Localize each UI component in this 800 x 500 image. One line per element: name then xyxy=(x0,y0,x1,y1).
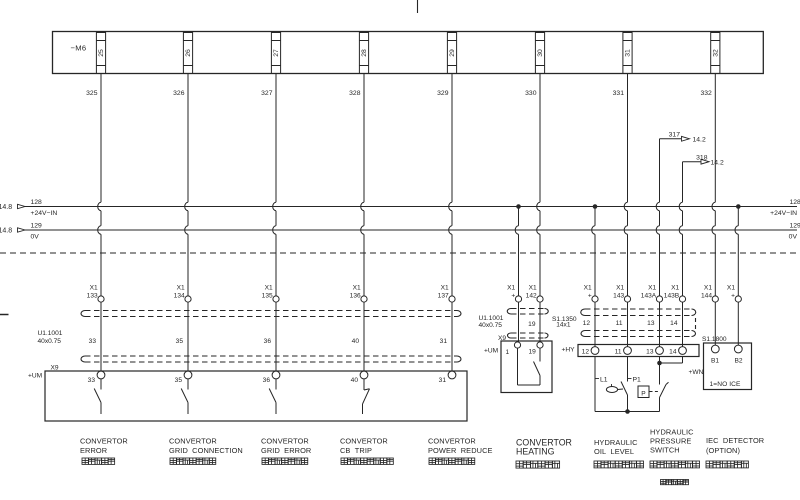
svg-text:11: 11 xyxy=(616,320,623,327)
svg-text:31: 31 xyxy=(440,338,448,345)
svg-text:HYDRAULIC: HYDRAULIC xyxy=(594,438,638,447)
svg-text:GRID CONNECTION: GRID CONNECTION xyxy=(169,446,243,455)
svg-text:CONVERTOR: CONVERTOR xyxy=(261,437,309,446)
svg-text:ERROR: ERROR xyxy=(80,446,107,455)
svg-text:11: 11 xyxy=(615,349,622,356)
svg-text:+: + xyxy=(511,292,515,299)
svg-text:CONVERTOR: CONVERTOR xyxy=(169,437,217,446)
svg-text:40: 40 xyxy=(352,338,360,345)
svg-text:35: 35 xyxy=(175,377,183,384)
svg-text:GRID ERROR: GRID ERROR xyxy=(261,446,311,455)
svg-text:14.2: 14.2 xyxy=(711,159,724,166)
svg-text:137: 137 xyxy=(438,292,449,299)
svg-text:HEATING: HEATING xyxy=(516,447,555,457)
svg-text:X1: X1 xyxy=(177,284,185,291)
svg-text:331: 331 xyxy=(613,90,625,97)
svg-text:+24V−IN: +24V−IN xyxy=(31,210,58,217)
svg-text:325: 325 xyxy=(86,90,98,97)
svg-text:25: 25 xyxy=(98,49,105,57)
svg-text:X1: X1 xyxy=(616,284,624,291)
svg-text:332: 332 xyxy=(700,90,712,97)
svg-text:14.8: 14.8 xyxy=(0,204,12,211)
svg-text:+HY: +HY xyxy=(562,347,576,354)
svg-text:(OPTION): (OPTION) xyxy=(706,446,740,455)
svg-text:129: 129 xyxy=(790,222,800,229)
svg-text:27: 27 xyxy=(273,49,280,57)
svg-text:328: 328 xyxy=(349,90,361,97)
svg-text:40x0.75: 40x0.75 xyxy=(38,338,62,345)
svg-text:B1: B1 xyxy=(711,358,719,365)
svg-text:B2: B2 xyxy=(735,358,743,365)
svg-text:0V: 0V xyxy=(31,234,40,241)
svg-text:PRESSURE: PRESSURE xyxy=(650,437,691,446)
svg-text:136: 136 xyxy=(350,292,361,299)
svg-text:133: 133 xyxy=(87,292,98,299)
svg-text:+: + xyxy=(588,292,592,299)
svg-text:X1: X1 xyxy=(671,284,679,291)
svg-text:X1: X1 xyxy=(529,284,537,291)
svg-text:33: 33 xyxy=(88,377,96,384)
svg-text:30: 30 xyxy=(537,49,544,57)
svg-text:CONVERTOR: CONVERTOR xyxy=(340,437,388,446)
svg-text:CONVERTOR: CONVERTOR xyxy=(428,437,476,446)
svg-text:26: 26 xyxy=(185,49,192,57)
svg-text:X9: X9 xyxy=(51,365,59,372)
svg-text:31: 31 xyxy=(625,49,632,57)
svg-text:36: 36 xyxy=(264,338,272,345)
svg-text:SWITCH: SWITCH xyxy=(650,446,680,455)
svg-text:142: 142 xyxy=(526,292,537,299)
svg-text:19: 19 xyxy=(529,349,537,356)
svg-text:326: 326 xyxy=(173,90,185,97)
svg-text:U1.1001: U1.1001 xyxy=(479,315,504,322)
svg-text:+UM: +UM xyxy=(28,372,42,379)
svg-text:P1: P1 xyxy=(633,377,642,384)
svg-text:OIL LEVEL: OIL LEVEL xyxy=(594,447,634,456)
svg-text:1=NO ICE: 1=NO ICE xyxy=(710,381,742,388)
svg-text:329: 329 xyxy=(437,90,449,97)
svg-text:128: 128 xyxy=(31,199,43,206)
svg-text:330: 330 xyxy=(525,90,537,97)
svg-text:33: 33 xyxy=(89,338,97,345)
svg-text:32: 32 xyxy=(713,49,720,57)
svg-text:129: 129 xyxy=(31,222,43,229)
svg-text:CONVERTOR: CONVERTOR xyxy=(80,437,128,446)
svg-text:CB TRIP: CB TRIP xyxy=(340,446,372,455)
svg-text:143A: 143A xyxy=(641,292,657,299)
svg-text:−M6: −M6 xyxy=(71,44,87,53)
svg-text:40: 40 xyxy=(351,377,359,384)
svg-text:14: 14 xyxy=(670,320,678,327)
svg-text:X1: X1 xyxy=(727,284,735,291)
svg-text:X1: X1 xyxy=(704,284,712,291)
svg-text:128: 128 xyxy=(790,199,800,206)
svg-text:X1: X1 xyxy=(648,284,656,291)
svg-text:12: 12 xyxy=(582,349,590,356)
svg-text:X1: X1 xyxy=(265,284,273,291)
svg-text:12: 12 xyxy=(583,320,591,327)
svg-text:POWER REDUCE: POWER REDUCE xyxy=(428,446,493,455)
svg-text:317: 317 xyxy=(669,132,681,139)
svg-text:36: 36 xyxy=(263,377,271,384)
svg-text:19: 19 xyxy=(528,321,536,328)
svg-text:14: 14 xyxy=(669,349,677,356)
svg-text:+: + xyxy=(731,292,735,299)
svg-text:327: 327 xyxy=(261,90,273,97)
svg-text:144: 144 xyxy=(701,292,712,299)
svg-text:134: 134 xyxy=(174,292,185,299)
svg-text:29: 29 xyxy=(449,49,456,57)
svg-text:13: 13 xyxy=(646,349,654,356)
svg-text:35: 35 xyxy=(176,338,184,345)
svg-text:13: 13 xyxy=(647,320,655,327)
svg-text:U1.1001: U1.1001 xyxy=(38,330,63,337)
svg-text:135: 135 xyxy=(262,292,273,299)
svg-text:P: P xyxy=(641,391,646,398)
svg-text:S1.1800: S1.1800 xyxy=(702,336,727,343)
svg-text:+24V−IN: +24V−IN xyxy=(770,210,797,217)
svg-text:X1: X1 xyxy=(441,284,449,291)
svg-text:14.8: 14.8 xyxy=(0,228,12,235)
svg-text:X1: X1 xyxy=(507,284,515,291)
svg-text:14.2: 14.2 xyxy=(693,136,706,143)
svg-text:+UM: +UM xyxy=(484,347,498,354)
svg-text:143B: 143B xyxy=(664,292,680,299)
svg-text:X1: X1 xyxy=(90,284,98,291)
svg-text:X1: X1 xyxy=(584,284,592,291)
svg-text:28: 28 xyxy=(361,49,368,57)
svg-text:+WN: +WN xyxy=(689,369,704,376)
svg-text:31: 31 xyxy=(439,377,447,384)
svg-text:0V: 0V xyxy=(789,234,798,241)
svg-text:X1: X1 xyxy=(353,284,361,291)
svg-text:143: 143 xyxy=(613,292,624,299)
svg-text:40x0.75: 40x0.75 xyxy=(479,322,503,329)
svg-text:1: 1 xyxy=(506,349,510,356)
svg-text:HYDRAULIC: HYDRAULIC xyxy=(650,427,694,436)
svg-text:L1: L1 xyxy=(600,377,608,384)
svg-text:14x1: 14x1 xyxy=(556,322,571,329)
svg-text:IEC DETECTOR: IEC DETECTOR xyxy=(706,436,764,445)
